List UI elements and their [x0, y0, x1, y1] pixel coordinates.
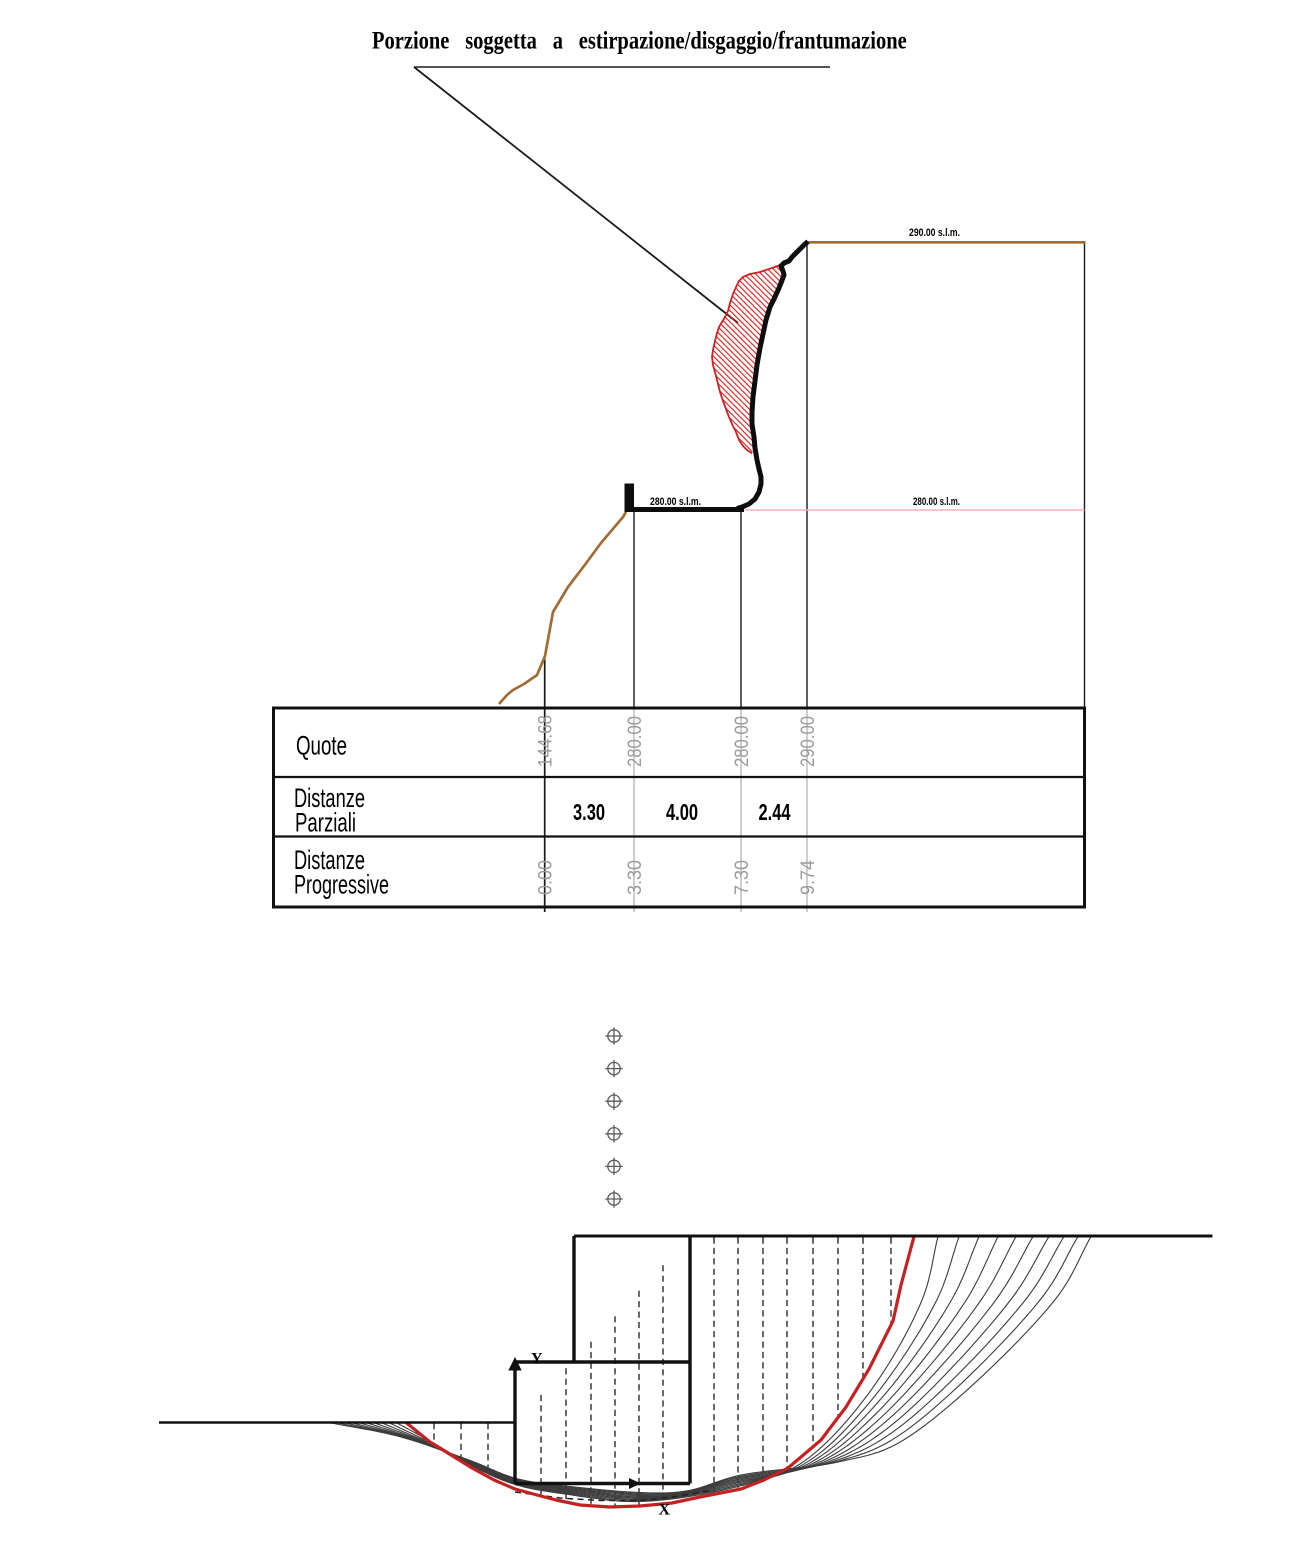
svg-text:Y: Y: [531, 1351, 543, 1368]
svg-text:9.74: 9.74: [797, 860, 819, 895]
svg-text:0.00: 0.00: [535, 860, 557, 895]
svg-text:7.30: 7.30: [731, 860, 753, 895]
svg-text:290.00: 290.00: [797, 716, 819, 767]
svg-text:3.30: 3.30: [624, 860, 646, 895]
svg-text:3.30: 3.30: [573, 799, 605, 825]
svg-text:4.00: 4.00: [666, 799, 698, 825]
svg-text:X: X: [659, 1502, 671, 1519]
svg-text:280.00 s.l.m.: 280.00 s.l.m.: [650, 496, 701, 508]
svg-text:280.00: 280.00: [731, 716, 753, 767]
svg-text:144.68: 144.68: [535, 715, 557, 767]
svg-text:Progressive: Progressive: [294, 870, 389, 900]
svg-text:290.00 s.l.m.: 290.00 s.l.m.: [909, 227, 960, 239]
svg-text:2.44: 2.44: [759, 799, 791, 825]
svg-text:280.00 s.l.m.: 280.00 s.l.m.: [913, 496, 960, 508]
svg-text:Porzione soggetta a estirpazio: Porzione soggetta a estirpazione/disgagg…: [372, 27, 907, 54]
svg-text:Quote: Quote: [296, 731, 347, 761]
svg-text:280.00: 280.00: [624, 716, 646, 767]
svg-text:Parziali: Parziali: [295, 808, 356, 838]
